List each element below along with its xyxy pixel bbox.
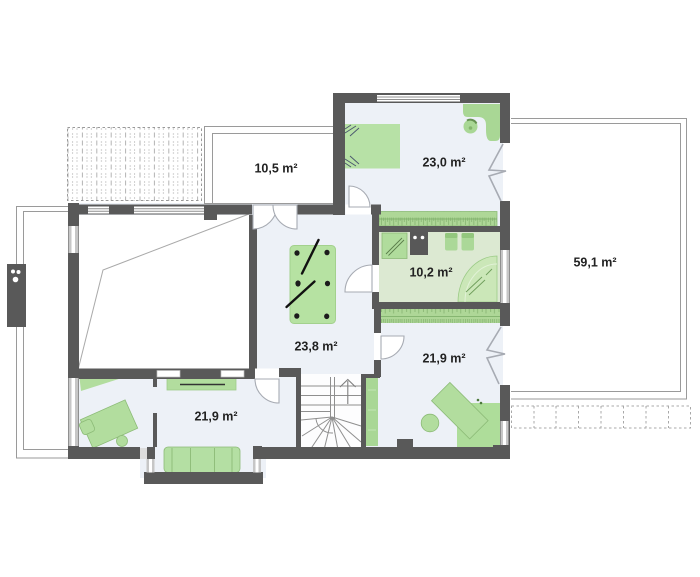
svg-text:59,1 m²: 59,1 m² bbox=[573, 256, 616, 270]
svg-text:10,5 m²: 10,5 m² bbox=[254, 162, 297, 176]
svg-text:23,8 m²: 23,8 m² bbox=[294, 340, 337, 354]
svg-text:23,0 m²: 23,0 m² bbox=[422, 156, 465, 170]
svg-text:21,9 m²: 21,9 m² bbox=[194, 410, 237, 424]
svg-text:10,2 m²: 10,2 m² bbox=[409, 266, 452, 280]
svg-text:21,9 m²: 21,9 m² bbox=[422, 352, 465, 366]
